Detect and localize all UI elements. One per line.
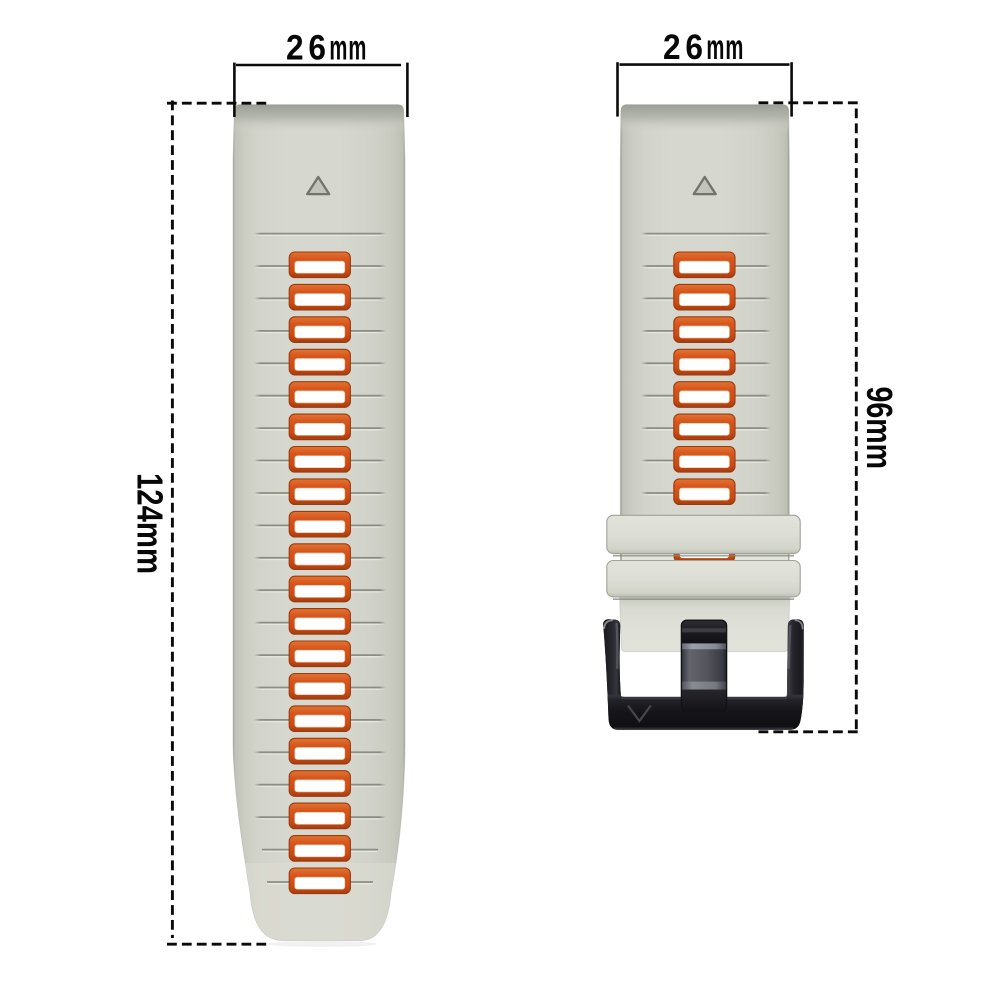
svg-text:m: m bbox=[348, 28, 366, 67]
svg-text:96mm: 96mm bbox=[859, 387, 900, 470]
svg-text:124mm: 124mm bbox=[130, 473, 171, 574]
svg-text:m: m bbox=[725, 28, 743, 67]
svg-text:6: 6 bbox=[308, 28, 326, 67]
svg-text:m: m bbox=[329, 28, 347, 67]
svg-text:6: 6 bbox=[685, 28, 703, 67]
svg-text:m: m bbox=[706, 28, 724, 67]
svg-text:2: 2 bbox=[663, 28, 681, 67]
svg-text:2: 2 bbox=[286, 28, 304, 67]
